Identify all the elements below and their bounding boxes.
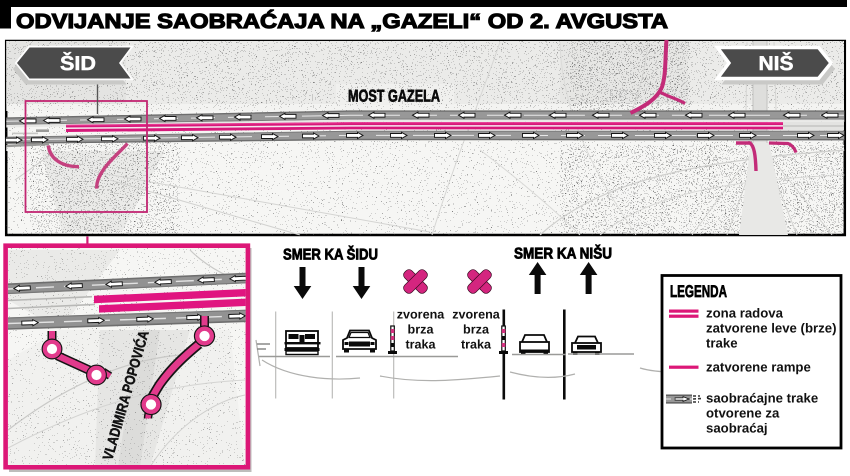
svg-text:zvorena: zvorena [397,308,446,322]
svg-text:zvorena: zvorena [452,308,501,322]
svg-text:LEGENDA: LEGENDA [670,282,727,301]
svg-text:zatvorene rampe: zatvorene rampe [706,360,811,375]
svg-text:zatvorene leve (brze): zatvorene leve (brze) [706,321,836,336]
svg-text:traka: traka [405,338,436,352]
svg-text:saobraćaj: saobraćaj [706,421,768,436]
svg-text:traka: traka [461,338,492,352]
svg-text:NIŠ: NIŠ [759,52,794,75]
svg-text:brza: brza [408,323,435,337]
svg-text:brza: brza [463,323,490,337]
svg-text:ODVIJANJE SAOBRAĆAJA NA „GAZEL: ODVIJANJE SAOBRAĆAJA NA „GAZELI“ OD 2. A… [16,9,668,33]
svg-text:SMER KA ŠIDU: SMER KA ŠIDU [283,246,378,264]
svg-text:MOST GAZELA: MOST GAZELA [348,87,440,106]
svg-text:zona radova: zona radova [706,306,784,321]
svg-text:ŠID: ŠID [60,52,96,75]
svg-text:SMER KA NIŠU: SMER KA NIŠU [514,245,612,263]
svg-text:trake: trake [706,336,738,351]
svg-text:saobraćajne trake: saobraćajne trake [706,391,818,406]
svg-text:otvorene za: otvorene za [706,406,780,421]
